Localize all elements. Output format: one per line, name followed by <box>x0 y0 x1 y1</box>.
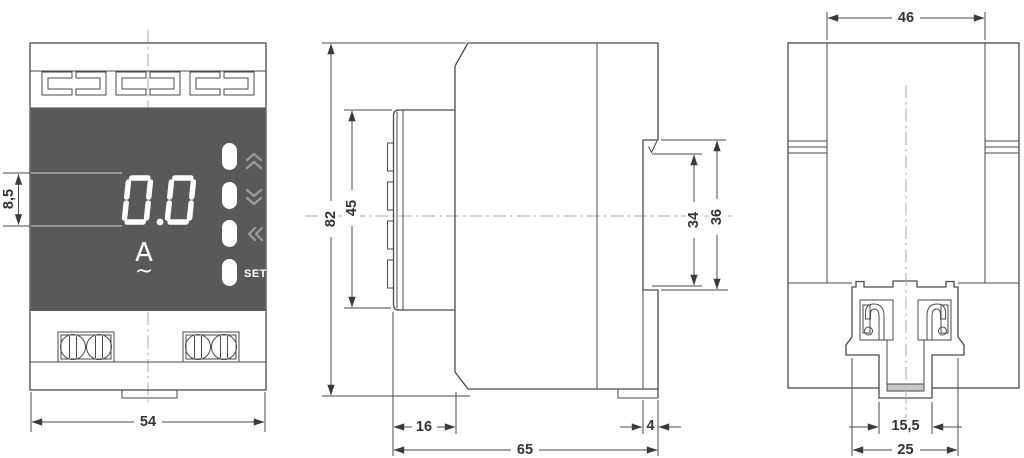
vent-slot <box>42 72 72 95</box>
technical-drawing-svg: 0.0 A ~ <box>0 0 1024 458</box>
dim-label: 82 <box>323 211 339 227</box>
dimensional-drawing: 0.0 A ~ <box>0 0 1024 458</box>
display-value: 0.0 <box>125 179 197 225</box>
side-body-top-rear <box>455 43 658 398</box>
dim-label: 36 <box>709 209 725 225</box>
vent-slot <box>224 72 254 95</box>
front-view: 0.0 A ~ <box>1 30 267 432</box>
dim-front-depth: 16 <box>393 312 456 456</box>
din-hook-detail <box>649 141 658 153</box>
down-button <box>222 182 237 209</box>
dim-overall-depth: 65 <box>394 442 657 458</box>
set-button-label: SET <box>244 268 267 280</box>
dim-label: 45 <box>344 200 360 216</box>
side-button-tab <box>388 182 394 210</box>
side-button-tab <box>388 260 394 288</box>
back-button <box>222 220 237 247</box>
dim-label: 8,5 <box>1 189 17 209</box>
dim-label: 65 <box>517 442 533 458</box>
terminal-block-left <box>58 332 114 362</box>
bottom-tab <box>122 390 177 398</box>
din-rail-clip <box>846 281 964 398</box>
dim-label: 34 <box>686 212 702 228</box>
dim-upper-width: 46 <box>827 10 985 40</box>
dim-label: 25 <box>897 442 913 458</box>
dim-label: 46 <box>898 10 914 26</box>
rear-side-ledges <box>788 141 1019 153</box>
ac-symbol: ~ <box>135 259 153 284</box>
side-button-tab <box>388 143 394 171</box>
decimal-point <box>157 219 164 226</box>
side-clip-foot <box>618 389 658 398</box>
up-button <box>222 143 237 170</box>
side-view: 82 45 34 36 <box>305 43 732 458</box>
dim-label: 16 <box>416 419 432 435</box>
terminal-block-right <box>183 332 239 362</box>
vent-slot <box>76 72 106 95</box>
vent-slot <box>116 72 146 95</box>
dim-recess-depth: 4 <box>620 400 681 456</box>
side-front-bezel <box>388 110 456 310</box>
dim-front-panel-height: 45 <box>344 110 392 308</box>
set-button <box>222 259 237 286</box>
dim-label: 4 <box>646 418 654 434</box>
side-button-tab <box>388 221 394 249</box>
side-body-bottom <box>455 372 658 389</box>
dim-label: 15,5 <box>891 418 919 434</box>
dim-label: 54 <box>140 414 156 430</box>
vent-slot <box>190 72 220 95</box>
dim-recess-inner-height: 34 <box>652 154 702 286</box>
rear-view: 46 15,5 25 <box>788 10 1019 458</box>
vent-slot <box>150 72 180 95</box>
